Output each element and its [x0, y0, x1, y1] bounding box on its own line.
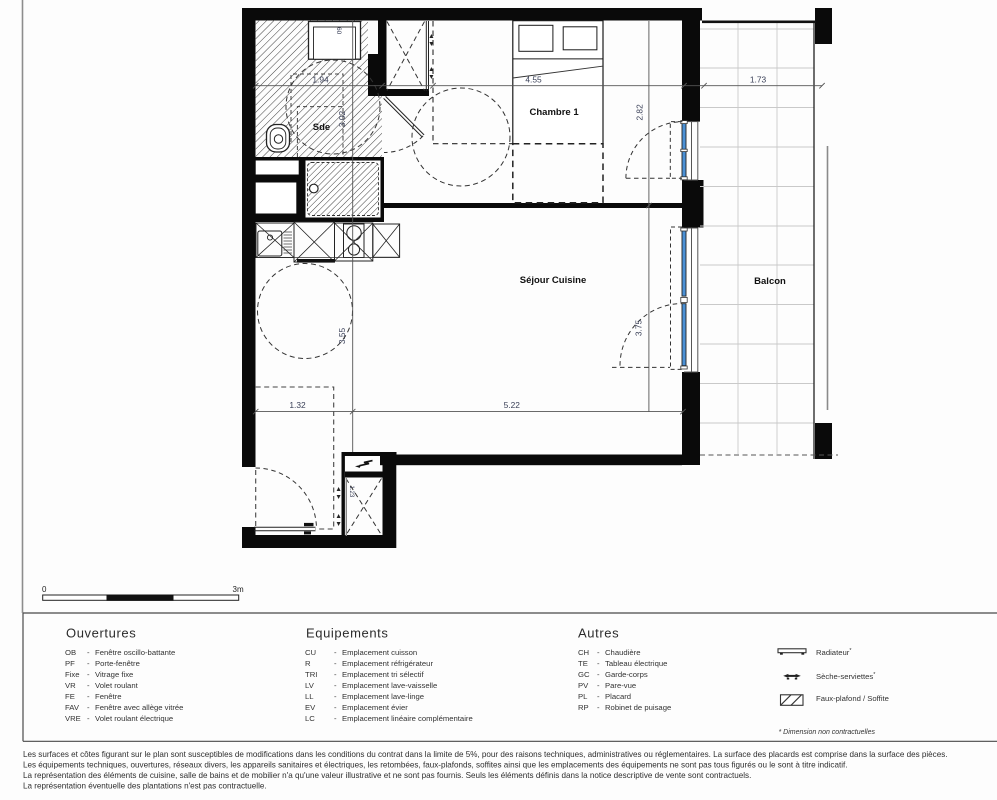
- svg-text:-: -: [334, 703, 337, 712]
- svg-text:LV: LV: [305, 681, 315, 690]
- svg-text:Balcon: Balcon: [754, 276, 786, 287]
- svg-text:3m: 3m: [233, 585, 244, 594]
- svg-text:-: -: [87, 648, 90, 657]
- svg-text:1.23: 1.23: [348, 486, 354, 498]
- svg-text:-: -: [87, 692, 90, 701]
- svg-text:Emplacement réfrigérateur: Emplacement réfrigérateur: [342, 659, 433, 668]
- svg-text:OB: OB: [65, 648, 76, 657]
- svg-text:Volet roulant: Volet roulant: [95, 681, 139, 690]
- svg-text:Fenêtre: Fenêtre: [95, 692, 122, 701]
- svg-text:GC: GC: [578, 670, 590, 679]
- svg-text:Emplacement évier: Emplacement évier: [342, 703, 408, 712]
- svg-text:-: -: [334, 714, 337, 723]
- svg-text:Garde-corps: Garde-corps: [605, 670, 648, 679]
- svg-text:Tableau électrique: Tableau électrique: [605, 659, 667, 668]
- svg-text:-: -: [87, 670, 90, 679]
- svg-text:-: -: [334, 692, 337, 701]
- svg-text:-: -: [597, 648, 600, 657]
- svg-text:Fenêtre oscillo-battante: Fenêtre oscillo-battante: [95, 648, 175, 657]
- svg-text:5.22: 5.22: [504, 400, 521, 410]
- svg-text:FAV: FAV: [65, 703, 80, 712]
- svg-text:Emplacement linéaire complémen: Emplacement linéaire complémentaire: [342, 714, 473, 723]
- svg-text:CU: CU: [305, 648, 316, 657]
- svg-text:Séjour Cuisine: Séjour Cuisine: [520, 275, 587, 286]
- svg-text:-: -: [87, 714, 90, 723]
- svg-text:Emplacement cuisson: Emplacement cuisson: [342, 648, 417, 657]
- svg-text:Les équipements techniques, ou: Les équipements techniques, ouvertures, …: [23, 761, 848, 770]
- svg-text:La représentation éventuelle d: La représentation éventuelle des plantat…: [23, 782, 267, 791]
- svg-text:Emplacement lave-vaisselle: Emplacement lave-vaisselle: [342, 681, 437, 690]
- svg-text:Ouvertures: Ouvertures: [66, 626, 136, 641]
- svg-text:LL: LL: [305, 692, 314, 701]
- svg-text:2.82: 2.82: [635, 104, 645, 121]
- svg-text:PV: PV: [578, 681, 589, 690]
- svg-text:Placard: Placard: [605, 692, 631, 701]
- svg-text:3.02: 3.02: [337, 111, 347, 128]
- svg-text:1.32: 1.32: [289, 400, 306, 410]
- svg-text:60: 60: [335, 27, 342, 35]
- svg-text:-: -: [87, 703, 90, 712]
- svg-text:La représentation des éléments: La représentation des éléments de cuisin…: [23, 771, 751, 780]
- svg-text:3.55: 3.55: [337, 328, 347, 345]
- svg-text:1.73: 1.73: [750, 75, 767, 85]
- svg-text:-: -: [87, 659, 90, 668]
- svg-text:Sde: Sde: [313, 122, 330, 133]
- svg-text:Chaudière: Chaudière: [605, 648, 640, 657]
- svg-text:Vitrage fixe: Vitrage fixe: [95, 670, 133, 679]
- svg-text:Emplacement tri sélectif: Emplacement tri sélectif: [342, 670, 424, 679]
- svg-text:* Dimension non contractuelles: * Dimension non contractuelles: [779, 729, 876, 736]
- svg-text:-: -: [334, 659, 337, 668]
- svg-text:PF: PF: [65, 659, 75, 668]
- svg-text:Pare-vue: Pare-vue: [605, 681, 636, 690]
- svg-text:Radiateur*: Radiateur*: [816, 648, 852, 657]
- svg-text:Chambre 1: Chambre 1: [530, 107, 580, 118]
- svg-text:Les surfaces et côtes figurant: Les surfaces et côtes figurant sur le pl…: [23, 750, 948, 759]
- svg-text:R: R: [305, 659, 311, 668]
- svg-text:-: -: [334, 681, 337, 690]
- svg-text:Fixe: Fixe: [65, 670, 80, 679]
- svg-text:FE: FE: [65, 692, 75, 701]
- svg-text:1.94: 1.94: [312, 75, 329, 85]
- svg-text:-: -: [597, 681, 600, 690]
- svg-text:Faux-plafond / Soffite: Faux-plafond / Soffite: [816, 694, 889, 703]
- svg-text:-: -: [597, 703, 600, 712]
- svg-text:Autres: Autres: [578, 626, 619, 641]
- svg-text:VR: VR: [65, 681, 76, 690]
- svg-text:-: -: [87, 681, 90, 690]
- svg-text:PL: PL: [578, 692, 588, 701]
- svg-text:Porte-fenêtre: Porte-fenêtre: [95, 659, 140, 668]
- svg-text:TE: TE: [578, 659, 588, 668]
- svg-text:Equipements: Equipements: [306, 626, 388, 641]
- svg-text:-: -: [597, 692, 600, 701]
- svg-text:TRI: TRI: [305, 670, 317, 679]
- svg-text:-: -: [597, 670, 600, 679]
- svg-text:LC: LC: [305, 714, 315, 723]
- svg-text:Robinet de puisage: Robinet de puisage: [605, 703, 671, 712]
- svg-text:EV: EV: [305, 703, 316, 712]
- svg-text:Fenêtre avec allège vitrée: Fenêtre avec allège vitrée: [95, 703, 183, 712]
- svg-text:CH: CH: [578, 648, 589, 657]
- svg-text:Emplacement lave-linge: Emplacement lave-linge: [342, 692, 424, 701]
- svg-text:Volet roulant électrique: Volet roulant électrique: [95, 714, 173, 723]
- svg-text:0: 0: [42, 585, 47, 594]
- svg-text:-: -: [334, 648, 337, 657]
- svg-text:-: -: [334, 670, 337, 679]
- svg-text:Sèche-serviettes*: Sèche-serviettes*: [816, 672, 876, 681]
- svg-text:-: -: [597, 659, 600, 668]
- svg-text:VRE: VRE: [65, 714, 81, 723]
- svg-text:RP: RP: [578, 703, 589, 712]
- svg-text:3.75: 3.75: [634, 320, 644, 337]
